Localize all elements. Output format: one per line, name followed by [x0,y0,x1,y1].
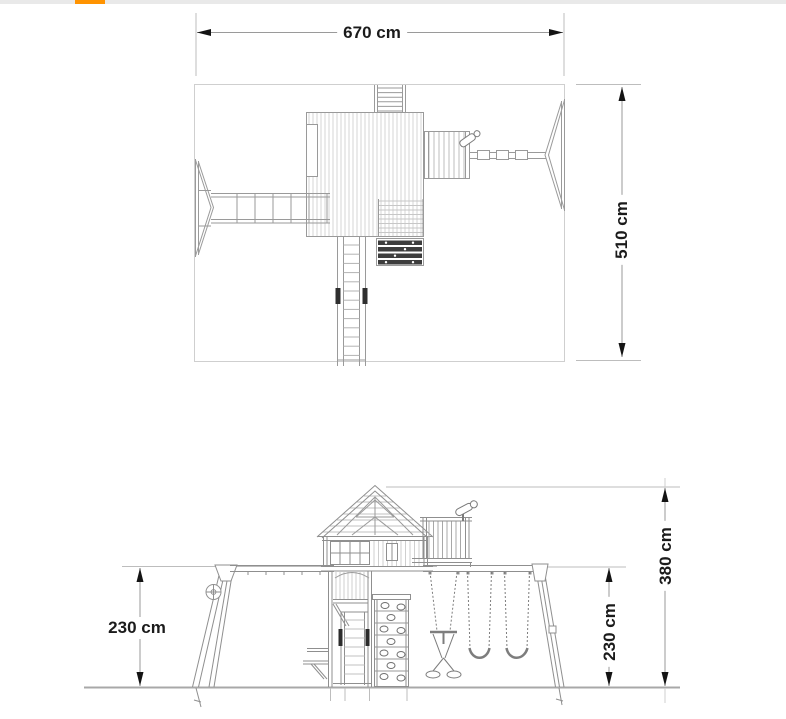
steering-wheel-icon [206,585,221,600]
dimension-sheet: { "top_bar": { "track_color": "#e9e9e9",… [0,0,786,719]
swing-beam-height-dimension-label: 230 cm [599,597,621,667]
plan-width-dimension-label: 670 cm [337,22,407,44]
belt-swing [468,572,492,658]
bench-side [303,649,328,680]
plan-depth-dimension-label: 510 cm [611,195,633,265]
gable-truss [337,497,413,535]
swing-beam-side [423,566,543,575]
side-view-drawing [84,486,680,708]
wall-band [324,537,428,567]
glider-swing [426,572,461,678]
rock-wall-plan [377,239,424,266]
overall-height-dimension-label: 380 cm [655,521,677,591]
left-aframe-side [193,565,238,707]
ground-anchors [331,688,408,701]
porch-plan [307,125,318,177]
beam-height-dimension-label: 230 cm [102,617,172,639]
window [331,542,370,565]
slide-side [333,612,371,685]
narrow-window [387,544,398,561]
playhouse-side [303,486,433,688]
rock-wall-side [373,595,411,687]
technical-drawing-canvas [0,0,786,719]
plan-view-drawing [195,85,565,367]
belt-swing [505,572,530,658]
right-aframe-side [532,564,564,705]
